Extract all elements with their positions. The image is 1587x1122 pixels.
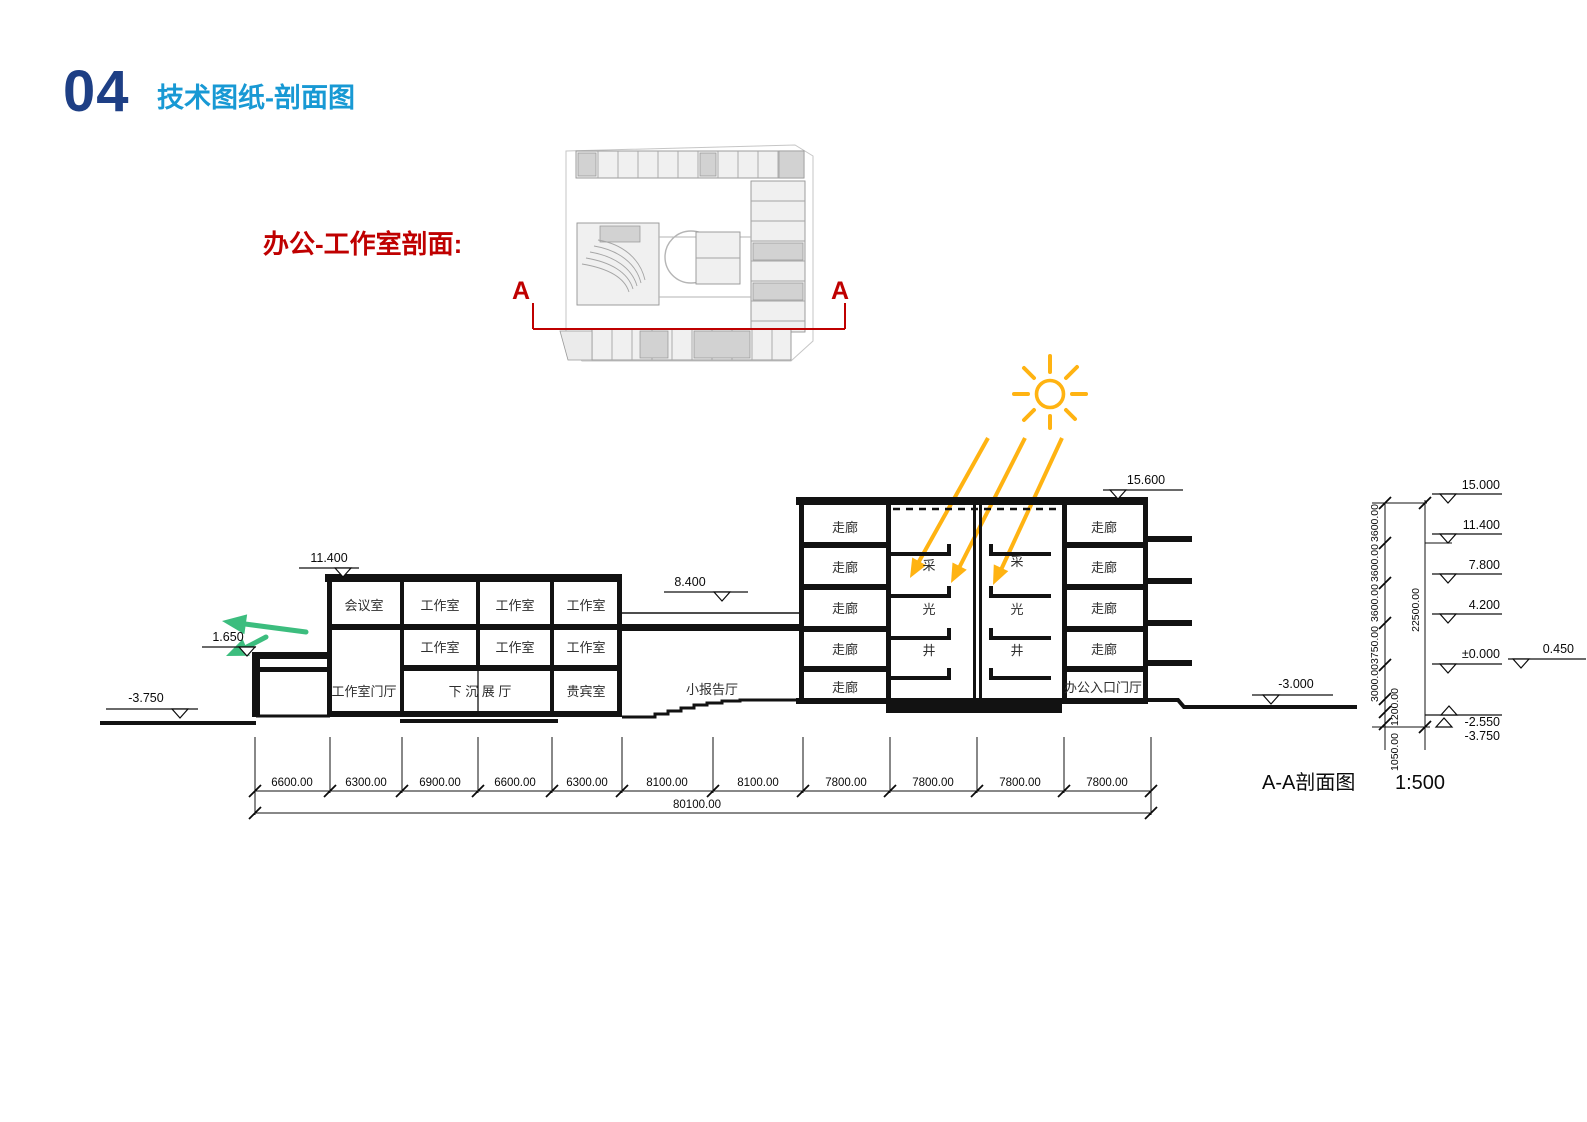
light-well-label: 采 (1010, 554, 1023, 569)
sun-icon (1014, 356, 1086, 428)
bay-dim: 6300.00 (345, 777, 387, 789)
room-label: 工作室门厅 (331, 684, 396, 699)
corridor-label: 走廊 (1091, 642, 1117, 657)
vchain-dim: 3600.00 (1369, 504, 1381, 542)
ladder-level: -3.750 (1465, 729, 1500, 743)
slide: 04 技术图纸-剖面图 办公-工作室剖面: (0, 0, 1587, 1122)
vchain-dim: 1050.00 (1389, 733, 1401, 771)
corridor-label: 走廊 (1091, 520, 1117, 535)
level-minus-3000: -3.000 (1278, 677, 1313, 691)
bay-dim: 7800.00 (1086, 777, 1128, 789)
section-drawing-canvas: A A (0, 0, 1587, 1122)
vchain-dim: 3000.00 (1369, 664, 1381, 702)
ladder-level: 4.200 (1469, 598, 1500, 612)
room-label: 下 沉 展 厅 (449, 684, 512, 699)
level-1650: 1.650 (212, 630, 243, 644)
corridor-label: 走廊 (832, 520, 858, 535)
ground-lines (100, 700, 1357, 723)
room-label: 会议室 (344, 598, 383, 613)
section-mark-a-left: A (512, 277, 530, 305)
right-building-block: 走廊 走廊 走廊 走廊 走廊 走廊 走廊 走廊 走廊 办公入口门厅 采 光 井 … (796, 497, 1192, 713)
light-well-label: 井 (922, 643, 935, 658)
room-label: 工作室 (420, 640, 459, 655)
light-well-label: 光 (1010, 602, 1023, 617)
corridor-label: 走廊 (1091, 601, 1117, 616)
room-label: 工作室 (495, 640, 534, 655)
level-11400: 11.400 (310, 551, 347, 565)
ladder-level: -2.550 (1465, 715, 1500, 729)
bay-dim: 7800.00 (912, 777, 954, 789)
corridor-label: 走廊 (832, 680, 858, 695)
bay-dim: 7800.00 (999, 777, 1041, 789)
room-label: 小报告厅 (686, 682, 738, 697)
bay-dim: 6900.00 (419, 777, 461, 789)
room-label: 工作室 (566, 598, 605, 613)
caption-title: A-A剖面图 (1262, 771, 1355, 794)
ladder-level: 11.400 (1463, 518, 1500, 532)
light-well-label: 井 (1010, 643, 1023, 658)
vchain-dim: 3750.00 (1369, 626, 1381, 664)
ladder-level: 0.450 (1543, 642, 1574, 656)
ladder-level: 7.800 (1469, 558, 1500, 572)
corridor-label: 走廊 (832, 642, 858, 657)
light-well-label: 光 (922, 602, 935, 617)
bridge-and-lecture-hall: 小报告厅 (622, 613, 800, 717)
bay-dim: 6300.00 (566, 777, 608, 789)
level-8400: 8.400 (674, 575, 705, 589)
bottom-dimensions: 6600.00 6300.00 6900.00 6600.00 6300.00 … (249, 737, 1157, 819)
caption-scale: 1:500 (1395, 772, 1445, 794)
room-label: 贵宾室 (566, 684, 605, 699)
ladder-level: 15.000 (1462, 478, 1500, 492)
entrance-canopy (252, 652, 332, 717)
bay-dim: 6600.00 (271, 777, 313, 789)
room-label: 工作室 (420, 598, 459, 613)
right-elevation-ladder: 3600.00 3600.00 3600.00 3750.00 3000.00 … (1369, 478, 1586, 771)
room-label: 办公入口门厅 (1064, 680, 1142, 695)
vchain-total: 22500.00 (1410, 588, 1422, 632)
vchain-dim: 1200.00 (1389, 688, 1401, 726)
corridor-label: 走廊 (832, 601, 858, 616)
room-label: 工作室 (495, 598, 534, 613)
bay-dim: 8100.00 (737, 777, 779, 789)
corridor-label: 走廊 (1091, 560, 1117, 575)
room-label: 工作室 (566, 640, 605, 655)
section-mark-a-right: A (831, 277, 849, 305)
bay-dim: 7800.00 (825, 777, 867, 789)
bay-dim: 6600.00 (494, 777, 536, 789)
drawing-caption: A-A剖面图 1:500 (1262, 771, 1445, 794)
vchain-dim: 3600.00 (1369, 584, 1381, 622)
level-15600: 15.600 (1127, 473, 1165, 487)
light-well-label: 采 (922, 558, 935, 573)
left-building-block: 会议室 工作室 工作室 工作室 工作室 工作室 工作室 工作室门厅 下 沉 展 … (325, 574, 622, 723)
ladder-level: ±0.000 (1462, 647, 1500, 661)
bay-dim: 8100.00 (646, 777, 688, 789)
total-dim: 80100.00 (673, 799, 721, 811)
corridor-label: 走廊 (832, 560, 858, 575)
vchain-dim: 3600.00 (1369, 544, 1381, 582)
level-minus-3750: -3.750 (128, 691, 163, 705)
